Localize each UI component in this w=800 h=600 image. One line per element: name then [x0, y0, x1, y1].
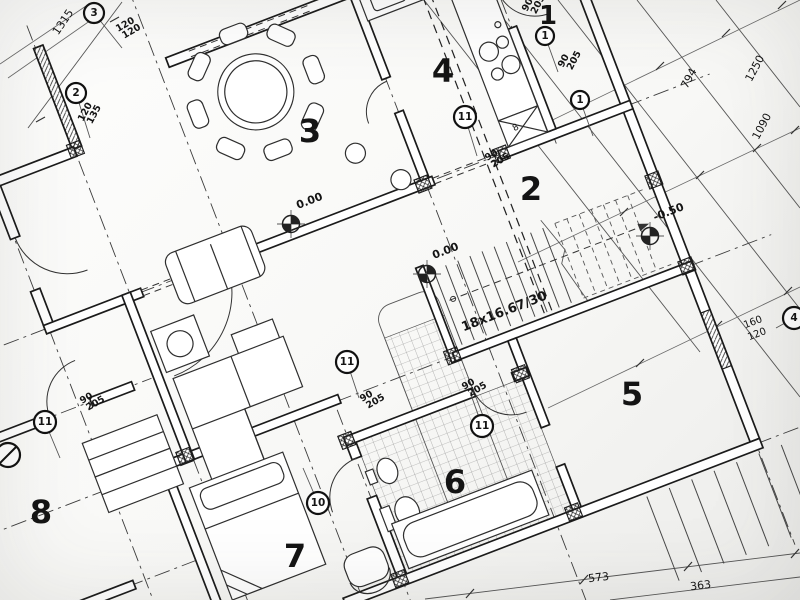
dimension-label: 1250	[743, 53, 768, 84]
dimension-label: 573	[587, 570, 609, 585]
dining-chair	[185, 98, 210, 130]
elevation-value: 0.00	[430, 240, 460, 262]
terrace-step	[647, 497, 679, 581]
door-window-tag: 1190205	[336, 351, 387, 412]
stair-tread	[603, 205, 632, 280]
tag-number: 11	[475, 420, 490, 432]
room-label-8: 8	[30, 493, 52, 531]
tag-number: 11	[340, 356, 355, 368]
terrace-step	[759, 454, 791, 538]
stair-tread	[555, 223, 584, 298]
terrace-step	[669, 488, 701, 572]
dining-table-set	[165, 0, 413, 251]
door-size-label: 120120	[114, 14, 143, 42]
loveseat-sofa	[163, 223, 268, 306]
door-size-label: 90205	[358, 384, 387, 412]
room-label-4: 4	[432, 52, 454, 90]
stair-tread	[616, 200, 645, 275]
tag-number: 2	[72, 87, 79, 99]
door-window-tag: 4	[776, 307, 800, 329]
dimension-label: 794	[678, 66, 699, 91]
dining-chair	[215, 135, 247, 161]
dimension-label: 363	[689, 578, 711, 593]
stair-break-line	[541, 215, 590, 310]
room-label-7: 7	[284, 537, 306, 575]
window-hatch	[701, 310, 732, 370]
elevation-value: 0.00	[294, 190, 324, 212]
terrace-step	[714, 471, 746, 555]
room-label-5: 5	[621, 375, 643, 413]
exterior-terrace-steps	[647, 428, 800, 581]
side-table	[151, 315, 210, 373]
tag-number: 4	[790, 312, 797, 324]
tag-number: 1	[576, 94, 583, 106]
tag-number: 11	[458, 111, 473, 123]
dining-chair	[265, 22, 297, 48]
room-label-2: 2	[520, 170, 542, 208]
dimension-label: 1090	[750, 111, 775, 142]
dining-chair	[262, 137, 294, 162]
stair-tread	[543, 228, 572, 303]
floor-plan-rotated-group: 18x16.67/30	[0, 0, 800, 600]
stair-tread	[567, 219, 596, 294]
tag-number: 11	[38, 416, 53, 428]
door-window-tag: 10	[303, 468, 329, 514]
blueprint-page: 18x16.67/30 1234567813157941250109057336…	[0, 0, 800, 600]
tag-number: 10	[311, 497, 326, 509]
dining-chair	[218, 21, 250, 46]
terrace-step	[736, 462, 768, 546]
door-size-label: 90205	[556, 45, 584, 74]
room-label-6: 6	[444, 463, 466, 501]
floor-plan-canvas: 18x16.67/30 1234567813157941250109057336…	[0, 0, 800, 600]
slash-marker	[0, 443, 20, 467]
tag-number: 3	[90, 7, 97, 19]
room-label-3: 3	[299, 112, 321, 150]
dining-chair	[301, 54, 326, 86]
stair-tread	[579, 214, 608, 289]
tag-number: 1	[541, 30, 548, 42]
door-size-label: 90205	[78, 386, 107, 414]
terrace-step	[692, 479, 724, 563]
